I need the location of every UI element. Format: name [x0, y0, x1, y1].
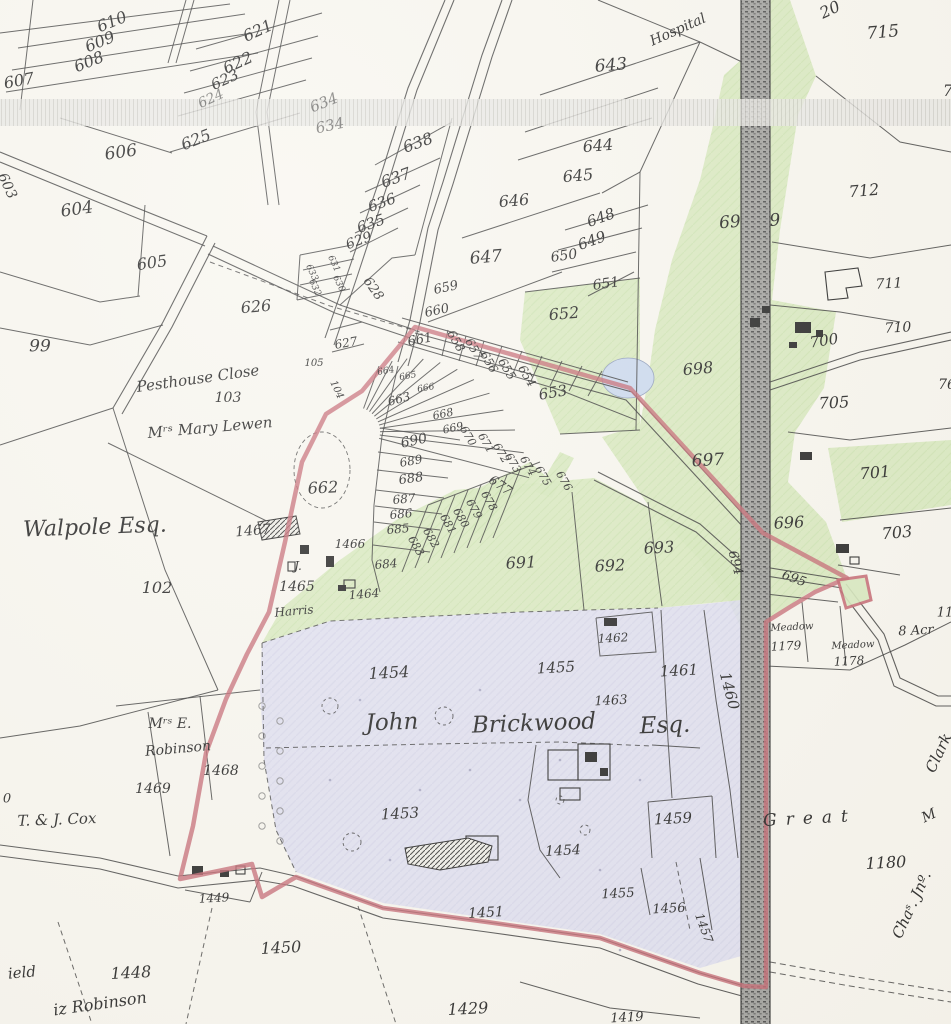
- parcel-number-689: 689: [399, 453, 424, 469]
- parcel-number-1461: 1461: [660, 663, 699, 680]
- parcel-number-644: 644: [582, 137, 614, 156]
- parcel-number-691: 691: [505, 554, 536, 572]
- parcel-number-1462: 1462: [597, 631, 628, 645]
- parcel-number-703: 703: [881, 524, 913, 543]
- parcel-number-1456: 1456: [652, 902, 686, 917]
- parcel-number-1429: 1429: [447, 1000, 489, 1018]
- parcel-number-69: 69: [718, 214, 741, 233]
- parcel-number-1179: 1179: [770, 639, 801, 653]
- parcel-number-1419: 1419: [610, 1011, 644, 1024]
- parcel-number-1448: 1448: [110, 964, 152, 982]
- name-label-ield: ield: [7, 964, 36, 981]
- name-label-walpole-esq: Walpole Esq.: [23, 514, 167, 541]
- parcel-number-11: 11: [937, 607, 951, 620]
- parcel-number-1469: 1469: [135, 782, 171, 796]
- parcel-number-604: 604: [60, 199, 95, 220]
- parcel-number-102: 102: [142, 580, 173, 596]
- parcel-number-627: 627: [334, 335, 359, 351]
- parcel-number-711: 711: [875, 276, 902, 291]
- parcel-number-688: 688: [398, 471, 424, 487]
- parcel-number-696: 696: [773, 514, 804, 532]
- parcel-number-103: 103: [215, 391, 242, 405]
- name-label-t-j-cox: T. & J. Cox: [17, 811, 96, 829]
- parcel-number-693: 693: [643, 539, 674, 557]
- parcel-number-7: 7: [943, 83, 951, 99]
- parcel-number-1459: 1459: [654, 811, 693, 828]
- parcel-number-1465: 1465: [279, 580, 315, 594]
- parcel-number-712: 712: [848, 182, 880, 201]
- parcel-number-651: 651: [592, 275, 620, 293]
- historical-parcel-map: 2061060960860762162262362462560660360460…: [0, 0, 951, 1024]
- parcel-number-great: Great: [763, 808, 857, 830]
- parcel-number-700: 700: [809, 332, 839, 351]
- parcel-number-1467: 1467: [235, 522, 272, 539]
- parcel-number-650: 650: [550, 247, 578, 265]
- parcel-number-645: 645: [562, 167, 594, 186]
- parcel-number-697: 697: [691, 452, 724, 471]
- parcel-number-652: 652: [548, 305, 580, 324]
- parcel-number-1463: 1463: [594, 694, 628, 709]
- name-label-m-e: Mʳˢ E.: [148, 717, 191, 731]
- parcel-number-76: 76: [938, 378, 951, 392]
- parcel-number-1455: 1455: [601, 887, 635, 902]
- parcel-number-1468: 1468: [203, 764, 239, 778]
- name-label-8-acr: 8 Acr: [898, 624, 934, 639]
- parcel-number-1464: 1464: [348, 587, 379, 602]
- name-label-brickwood: Brickwood: [472, 710, 597, 737]
- parcel-number-605: 605: [136, 253, 168, 273]
- parcel-number-687: 687: [392, 492, 416, 506]
- parcel-number-662: 662: [307, 479, 338, 497]
- parcel-number-685: 685: [386, 522, 410, 536]
- parcel-number-1450: 1450: [260, 939, 302, 957]
- parcel-number-684: 684: [374, 557, 398, 571]
- parcel-number-1454: 1454: [368, 664, 410, 682]
- parcel-number-701: 701: [859, 464, 891, 483]
- parcel-number-105: 105: [304, 359, 323, 369]
- parcel-number-646: 646: [498, 192, 530, 211]
- parcel-number-1454: 1454: [545, 843, 581, 859]
- parcel-number-99: 99: [29, 339, 51, 356]
- parcel-number-686: 686: [389, 507, 413, 521]
- parcel-number-692: 692: [594, 557, 625, 575]
- parcel-number-1178: 1178: [833, 654, 864, 668]
- name-label-harris: Harris: [274, 603, 314, 618]
- parcel-number-710: 710: [884, 320, 911, 335]
- parcel-number-j: J.: [294, 560, 302, 572]
- parcel-number-1451: 1451: [468, 905, 504, 921]
- parcel-number-647: 647: [469, 248, 503, 268]
- parcel-number-698: 698: [682, 360, 714, 379]
- parcel-number-1466: 1466: [335, 538, 366, 550]
- parcel-number-715: 715: [866, 23, 900, 43]
- parcel-number-606: 606: [104, 142, 139, 163]
- name-label-john: John: [365, 711, 418, 736]
- parcel-number-643: 643: [594, 56, 628, 76]
- parcel-number-1455: 1455: [537, 660, 576, 677]
- parcel-number-0: 0: [3, 793, 11, 806]
- parcel-number-705: 705: [818, 394, 849, 412]
- parcel-number-9: 9: [769, 212, 781, 230]
- parcel-number-1449: 1449: [198, 891, 229, 905]
- parcel-number-1180: 1180: [865, 854, 907, 872]
- parcel-number-626: 626: [240, 298, 272, 317]
- parcel-number-1453: 1453: [381, 806, 420, 823]
- name-label-esq: Esq.: [639, 714, 690, 739]
